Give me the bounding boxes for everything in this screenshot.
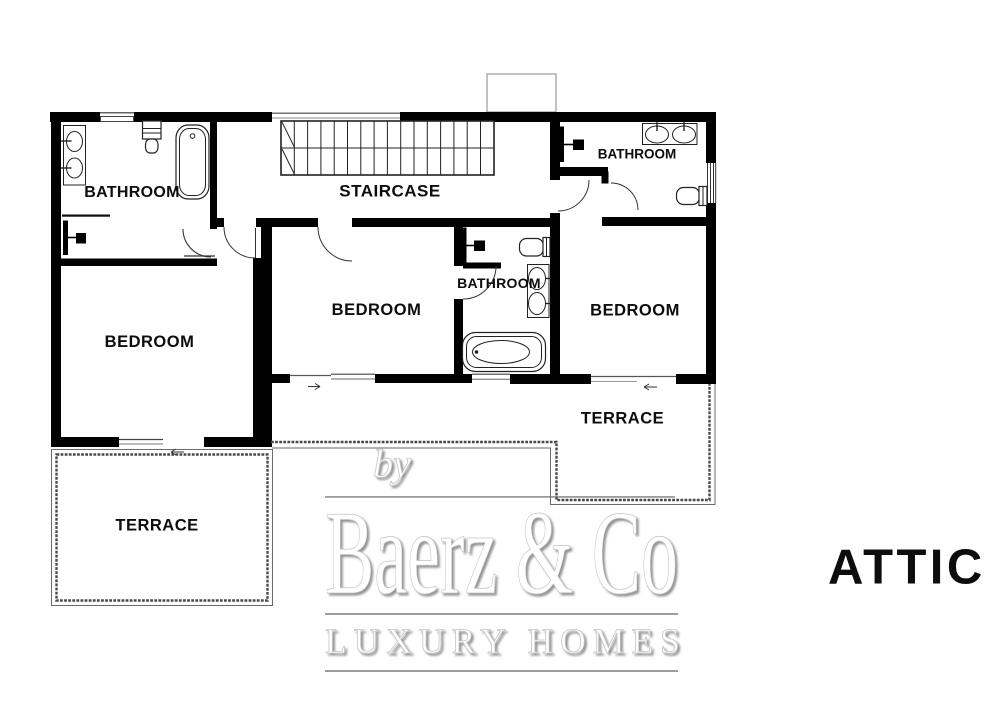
svg-text:TERRACE: TERRACE [581, 410, 664, 428]
svg-text:ATTIC: ATTIC [828, 541, 986, 595]
svg-text:BATHROOM: BATHROOM [598, 147, 677, 162]
svg-text:BEDROOM: BEDROOM [332, 301, 422, 319]
svg-text:STAIRCASE: STAIRCASE [339, 182, 440, 201]
svg-text:LUXURY HOMES: LUXURY HOMES [325, 621, 687, 661]
svg-text:BEDROOM: BEDROOM [105, 333, 195, 351]
svg-text:Baerz & Co: Baerz & Co [325, 486, 678, 619]
svg-text:TERRACE: TERRACE [115, 517, 198, 535]
svg-text:BATHROOM: BATHROOM [457, 275, 541, 291]
svg-text:BATHROOM: BATHROOM [84, 184, 179, 201]
svg-text:BEDROOM: BEDROOM [590, 302, 680, 320]
